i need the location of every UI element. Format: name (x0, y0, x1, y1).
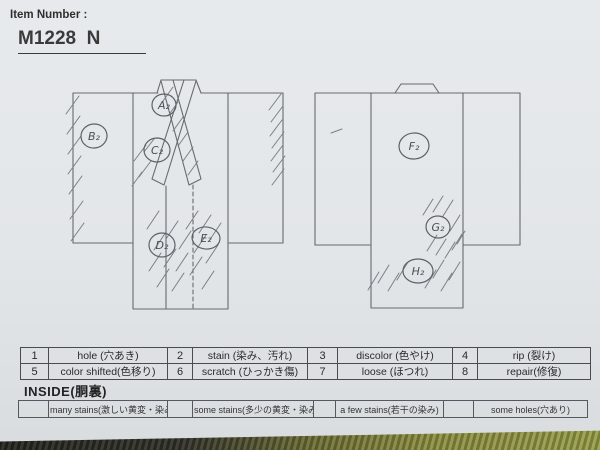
item-number-label: Item Number : (10, 9, 87, 21)
legend-code-cell: 5 (21, 364, 49, 380)
kimono-condition-diagram: A₂ B₂ C₂ D₂ E₂ (0, 60, 600, 350)
inside-mark-cell (168, 401, 193, 418)
legend-row-2: 5 color shifted(色移り) 6 scratch (ひっかき傷) 7… (21, 364, 591, 380)
inside-condition-table: many stains(激しい黄変・染み) some stains(多少の黄変・… (18, 400, 588, 418)
defect-legend-table: 1 hole (穴あき) 2 stain (染み、汚れ) 3 discolor … (20, 347, 591, 380)
legend-code-cell: 8 (453, 364, 478, 380)
legend-code-cell: 7 (308, 364, 338, 380)
legend-label-cell: color shifted(色移り) (49, 364, 168, 380)
inside-option-label: some stains(多少の黄変・染み) (193, 401, 314, 418)
defect-mark-H2: H₂ (403, 259, 433, 283)
item-number-value: M1228 N (18, 28, 146, 54)
svg-text:D₂: D₂ (156, 239, 169, 252)
defect-mark-A2: A₂ (152, 94, 176, 116)
inside-row: many stains(激しい黄変・染み) some stains(多少の黄変・… (19, 401, 588, 418)
defect-mark-D2: D₂ (149, 233, 175, 257)
inside-mark-cell (444, 401, 474, 418)
legend-row-1: 1 hole (穴あき) 2 stain (染み、汚れ) 3 discolor … (21, 348, 591, 364)
legend-code-cell: 4 (453, 348, 478, 364)
defect-mark-G2: G₂ (425, 214, 452, 239)
svg-text:H₂: H₂ (412, 265, 425, 278)
document-page: Item Number : M1228 N (0, 0, 600, 450)
legend-code-cell: 1 (21, 348, 49, 364)
svg-text:F₂: F₂ (409, 140, 420, 153)
legend-label-cell: loose (ほつれ) (338, 364, 453, 380)
legend-code-cell: 3 (308, 348, 338, 364)
legend-label-cell: scratch (ひっかき傷) (193, 364, 308, 380)
legend-label-cell: hole (穴あき) (49, 348, 168, 364)
inside-option-label: some holes(穴あり) (474, 401, 588, 418)
svg-text:A₂: A₂ (157, 99, 171, 112)
svg-text:E₂: E₂ (200, 232, 212, 245)
front-left-sleeve-hatching (66, 96, 84, 241)
inside-section-heading: INSIDE(胴裏) (24, 381, 107, 400)
kimono-front-outline (73, 80, 283, 309)
legend-label-cell: discolor (色やけ) (338, 348, 453, 364)
inside-mark-cell (19, 401, 49, 418)
legend-code-cell: 6 (168, 364, 193, 380)
defect-mark-B2: B₂ (79, 122, 108, 149)
inside-option-label: many stains(激しい黄変・染み) (49, 401, 168, 418)
legend-label-cell: repair(修復) (478, 364, 591, 380)
legend-label-cell: rip (裂け) (478, 348, 591, 364)
svg-text:B₂: B₂ (88, 130, 101, 143)
legend-code-cell: 2 (168, 348, 193, 364)
inside-option-label: a few stains(若干の染み) (336, 401, 444, 418)
inside-mark-cell (314, 401, 336, 418)
svg-text:C₂: C₂ (151, 144, 164, 157)
defect-mark-F2: F₂ (398, 132, 431, 161)
svg-text:G₂: G₂ (432, 221, 446, 234)
legend-label-cell: stain (染み、汚れ) (193, 348, 308, 364)
defect-mark-C2: C₂ (144, 138, 170, 162)
